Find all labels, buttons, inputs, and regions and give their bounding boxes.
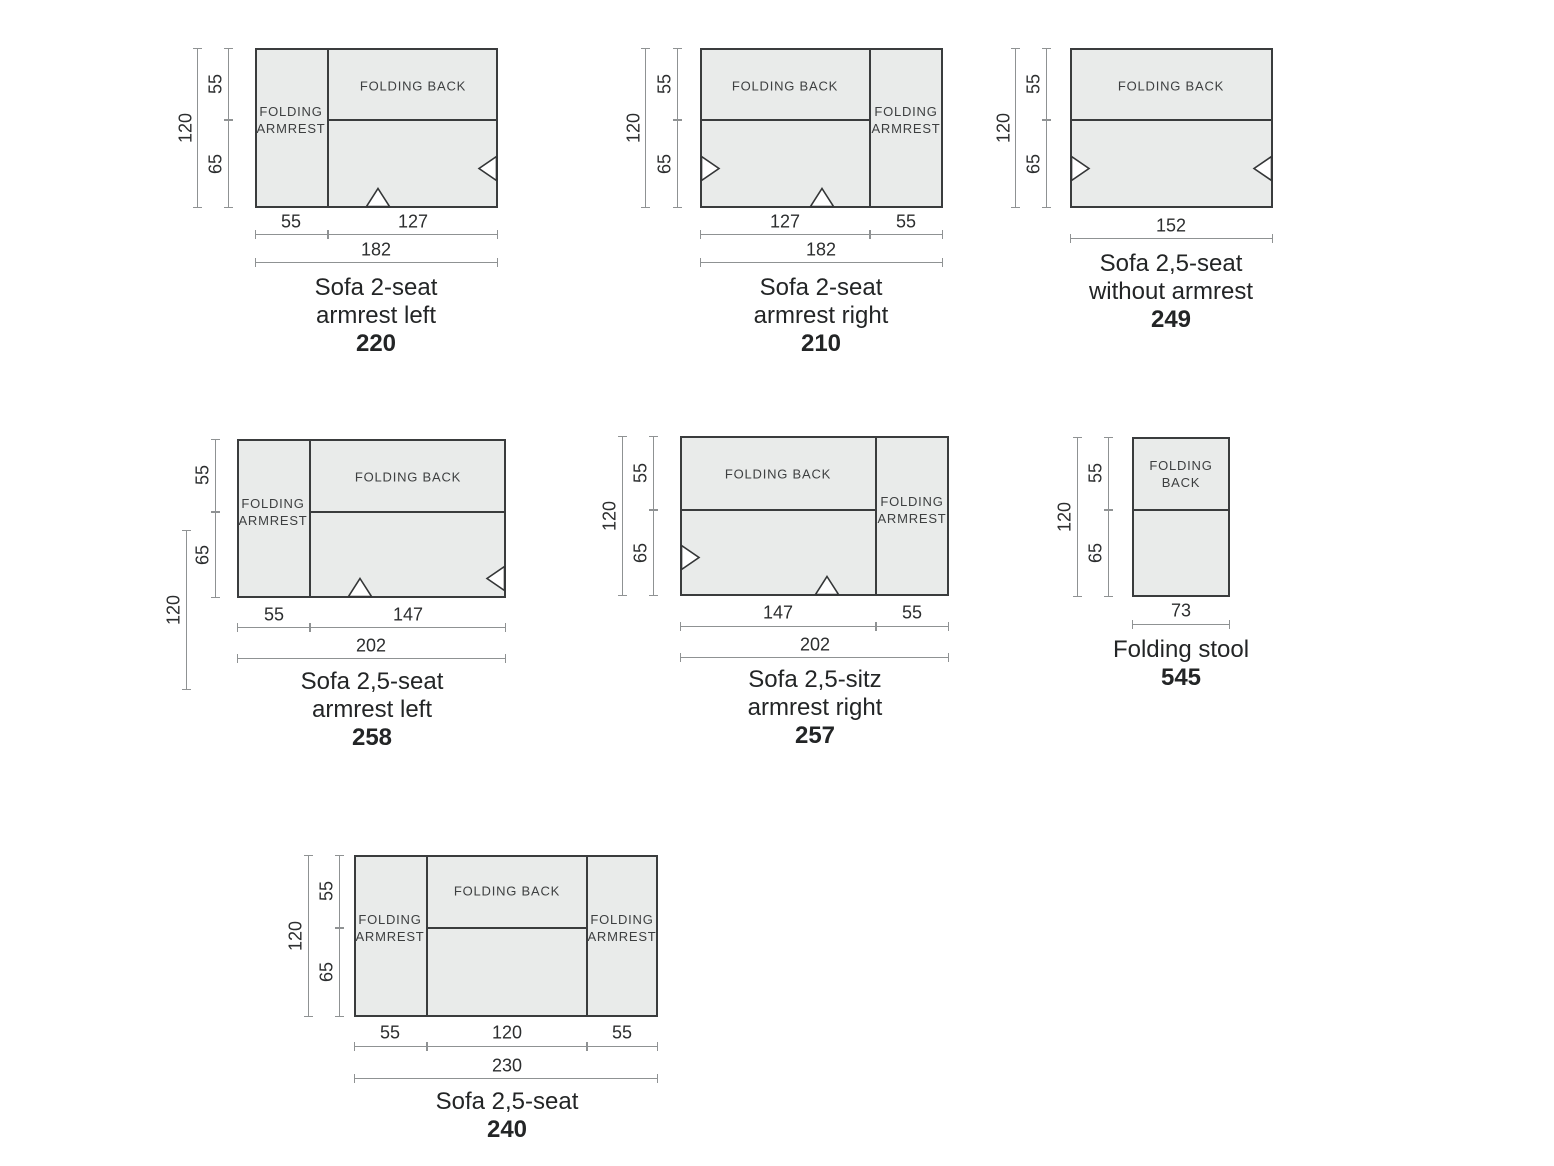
dim-line-seat-depth (339, 928, 340, 1017)
diagram-sofa-240: FOLDING BACK FOLDING ARMREST FOLDING ARM… (0, 0, 1554, 1166)
dim-label-armrest-right-width: 55 (612, 1023, 632, 1044)
dim-label-total-width: 230 (492, 1056, 522, 1077)
dim-line-total-width (354, 1078, 658, 1079)
region-label-folding-armrest-right: FOLDING ARMREST (585, 911, 659, 945)
caption: Sofa 2,5-seat 240 (436, 1088, 579, 1144)
caption-line: Sofa 2,5-seat (436, 1088, 579, 1116)
dim-line-total-height (308, 855, 309, 1017)
dim-line-back-depth (339, 855, 340, 928)
dim-label-armrest-left-width: 55 (380, 1023, 400, 1044)
dim-line-armrest-left-width (354, 1046, 427, 1047)
dim-label-total-height: 120 (286, 921, 307, 951)
back-divider (428, 927, 586, 929)
region-label-folding-back: FOLDING BACK (454, 883, 560, 900)
region-label-folding-armrest-left: FOLDING ARMREST (353, 911, 427, 945)
dim-label-back-depth: 55 (317, 881, 338, 901)
product-code: 240 (436, 1116, 579, 1144)
dim-label-seat-width: 120 (492, 1023, 522, 1044)
sofa-dimension-sheet: FOLDING BACK FOLDING ARMREST 120 55 65 5… (0, 0, 1554, 1166)
dim-label-seat-depth: 65 (317, 962, 338, 982)
dim-line-armrest-right-width (587, 1046, 658, 1047)
dim-line-seat-width (427, 1046, 587, 1047)
